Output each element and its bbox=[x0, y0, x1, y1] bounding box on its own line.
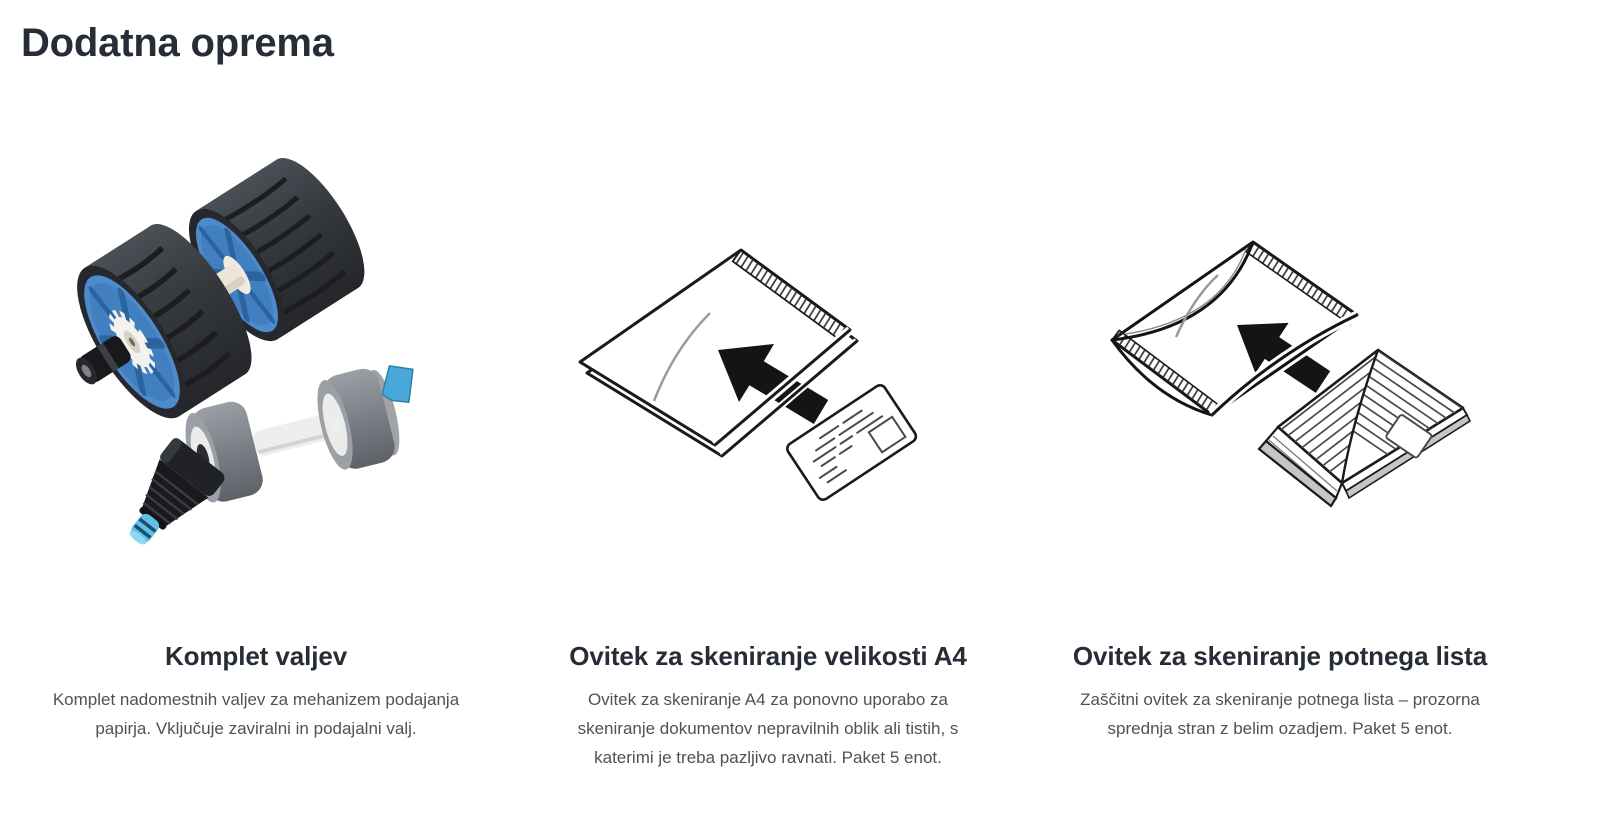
card-figure bbox=[0, 130, 512, 600]
accessory-description: Komplet nadomestnih valjev za mehanizem … bbox=[10, 685, 502, 743]
a4-carrier-sheet-image bbox=[558, 215, 978, 515]
page-title: Dodatna oprema bbox=[21, 20, 1600, 66]
accessory-title: Ovitek za skeniranje potnega lista bbox=[1032, 640, 1528, 673]
accessory-card-passport-sheet: Ovitek za skeniranje potnega lista Zašči… bbox=[1024, 130, 1536, 772]
accessory-title: Ovitek za skeniranje velikosti A4 bbox=[520, 640, 1016, 673]
roller-kit-image bbox=[56, 145, 456, 585]
card-figure bbox=[512, 130, 1024, 600]
accessory-description: Zaščitni ovitek za skeniranje potnega li… bbox=[1034, 685, 1526, 743]
accessory-cards: Komplet valjev Komplet nadomestnih valje… bbox=[0, 130, 1600, 772]
accessory-description: Ovitek za skeniranje A4 za ponovno upora… bbox=[522, 685, 1014, 772]
accessory-card-a4-sheet: Ovitek za skeniranje velikosti A4 Ovitek… bbox=[512, 130, 1024, 772]
accessories-page: Dodatna oprema bbox=[0, 20, 1600, 823]
passport-carrier-sheet-image bbox=[1070, 215, 1490, 515]
card-figure bbox=[1024, 130, 1536, 600]
accessory-title: Komplet valjev bbox=[8, 640, 504, 673]
accessory-card-roller-kit: Komplet valjev Komplet nadomestnih valje… bbox=[0, 130, 512, 772]
